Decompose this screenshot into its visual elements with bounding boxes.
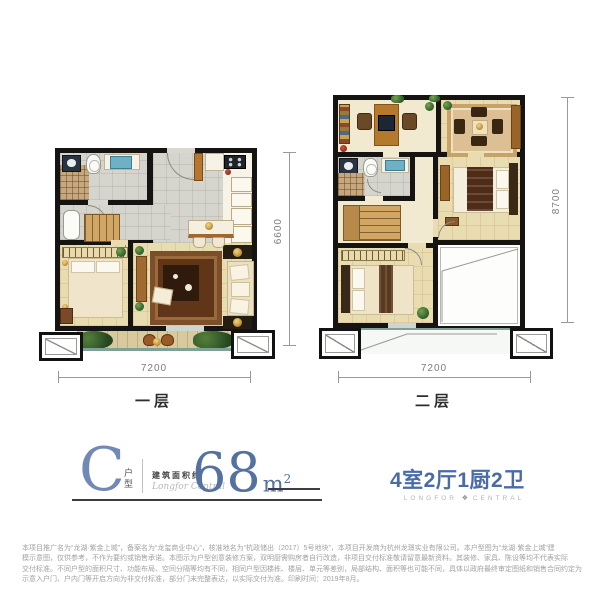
room-layout-text: 4室2厅1厨2卫 (390, 464, 525, 494)
bookshelf (339, 104, 350, 144)
floor2-width-dimline (338, 377, 530, 378)
headboard (341, 265, 350, 313)
pillow (496, 190, 509, 209)
floor2-height-dimline (567, 97, 568, 322)
red-flower (340, 145, 347, 152)
pillow (71, 261, 95, 273)
pillow (96, 261, 120, 273)
area-value: 68 m2 (192, 446, 291, 500)
plant (417, 307, 429, 319)
title-underline-long (72, 499, 322, 501)
disclaimer-line: 本项目推广名为“龙湖·紫金上城”，备案名为“龙玺商业中心”，核准地名为“杭政储出… (22, 544, 582, 554)
toilet (363, 158, 378, 177)
bed-runner (379, 265, 393, 313)
balcony-rail (73, 348, 239, 351)
desk-chair (402, 113, 417, 130)
pillow (352, 290, 365, 311)
floor-cushion (471, 107, 487, 117)
plant (443, 101, 452, 110)
floor1-height-dim: 6600 (273, 218, 284, 244)
coffee-table (152, 286, 173, 305)
bed-blanket (467, 167, 493, 211)
sink (385, 160, 405, 171)
floor2-label: 二层 (338, 390, 530, 411)
disclaimer-line: 示意入户门、户内门等开启方向为非交付标准，部分门未完整表达，以实际交付为准。印刷… (22, 575, 582, 585)
toilet (86, 154, 101, 174)
dim-tick (283, 345, 296, 346)
floor1-stairs (84, 214, 120, 242)
balcony-chair (161, 334, 174, 346)
pillow (496, 170, 509, 189)
unit-type-word: 户 型 (124, 468, 134, 490)
ac-platform (510, 328, 553, 359)
bedroom-bench (60, 308, 73, 324)
floor1-width-dim: 7200 (58, 363, 250, 374)
longfor-logo-icon: ❖ (462, 494, 468, 502)
sofa (227, 261, 254, 316)
tv-cabinet (136, 256, 147, 302)
floor1-plan (55, 148, 257, 354)
floor2-hall (415, 157, 433, 201)
floor2-void (438, 245, 520, 326)
dim-tick (561, 322, 574, 323)
balcony-plants (193, 331, 235, 349)
unit-type-word-2: 型 (124, 479, 134, 490)
entry-door-leaf (194, 153, 203, 181)
plant (429, 95, 440, 102)
title-divider (142, 459, 143, 493)
brand-right: CENTRAL (473, 495, 524, 502)
floor2-shower (338, 173, 364, 196)
fridge (231, 226, 252, 243)
area-unit: m2 (263, 473, 292, 496)
washing-machine (63, 210, 80, 240)
dresser (440, 165, 450, 201)
floor2-width-dim: 7200 (338, 363, 530, 374)
kitchen-flower (225, 169, 231, 175)
ac-platform (231, 330, 275, 359)
wardrobe (341, 250, 405, 261)
void-diagonal (438, 245, 520, 326)
computer-monitor (378, 115, 395, 131)
disclaimer-line: 模示意图，仅供参考，不作为要约或销售承诺。本图示为户型创意装修方案，双明厨需购房… (22, 554, 582, 564)
floor-cushion (492, 119, 503, 134)
cooktop (224, 155, 246, 169)
stair-landing (343, 205, 360, 241)
wall-cabinet (511, 105, 521, 149)
sink (110, 156, 132, 169)
unit-type-letter: C (79, 440, 125, 500)
disclaimer: 本项目推广名为“龙湖·紫金上城”，备案名为“龙玺商业中心”，核准地名为“杭政储出… (22, 544, 582, 586)
brand-left: LONGFOR (404, 495, 457, 502)
brand-line: LONGFOR ❖ CENTRAL (388, 494, 540, 502)
disclaimer-line: 交付标准。不同户型的面积尺寸、功能布局、空间分隔等均有不同，相同户型因楼栋、楼层… (22, 565, 582, 575)
floor1-width-dimline (58, 377, 250, 378)
dining-chair (212, 237, 225, 248)
floor2-height-dim: 8700 (551, 188, 562, 214)
ac-platform (319, 328, 361, 359)
kitchen-counter (205, 153, 224, 171)
headboard (509, 163, 518, 215)
dim-tick (250, 371, 251, 383)
floor2-plan (333, 95, 525, 357)
floor1-height-dimline (289, 152, 290, 345)
floor1-label: 一层 (58, 390, 250, 411)
plant (391, 95, 404, 103)
pillow (352, 268, 365, 289)
kitchen-sink (231, 208, 252, 225)
side-table (223, 316, 252, 329)
floorplan-page: 6600 7200 一层 (0, 0, 600, 600)
balcony-table (153, 338, 161, 346)
dim-tick (530, 371, 531, 383)
tea-set (476, 123, 483, 130)
kitchen-cabinet (231, 193, 252, 207)
title-underline-short (268, 488, 320, 490)
plant (425, 102, 434, 111)
washbasin (62, 155, 81, 172)
unit-type-word-1: 户 (124, 468, 134, 479)
floor2-balcony (357, 328, 512, 354)
plant (135, 246, 144, 255)
kitchen-cabinet (231, 177, 252, 192)
floor-cushion (471, 136, 487, 146)
dining-chair (193, 237, 206, 248)
ac-platform (39, 332, 83, 361)
plant (116, 247, 126, 257)
side-table (223, 245, 252, 259)
plant (135, 302, 144, 311)
floor-cushion (454, 119, 465, 134)
dining-decor (205, 222, 213, 230)
desk-chair (357, 113, 372, 130)
area-number: 68 (192, 446, 261, 500)
